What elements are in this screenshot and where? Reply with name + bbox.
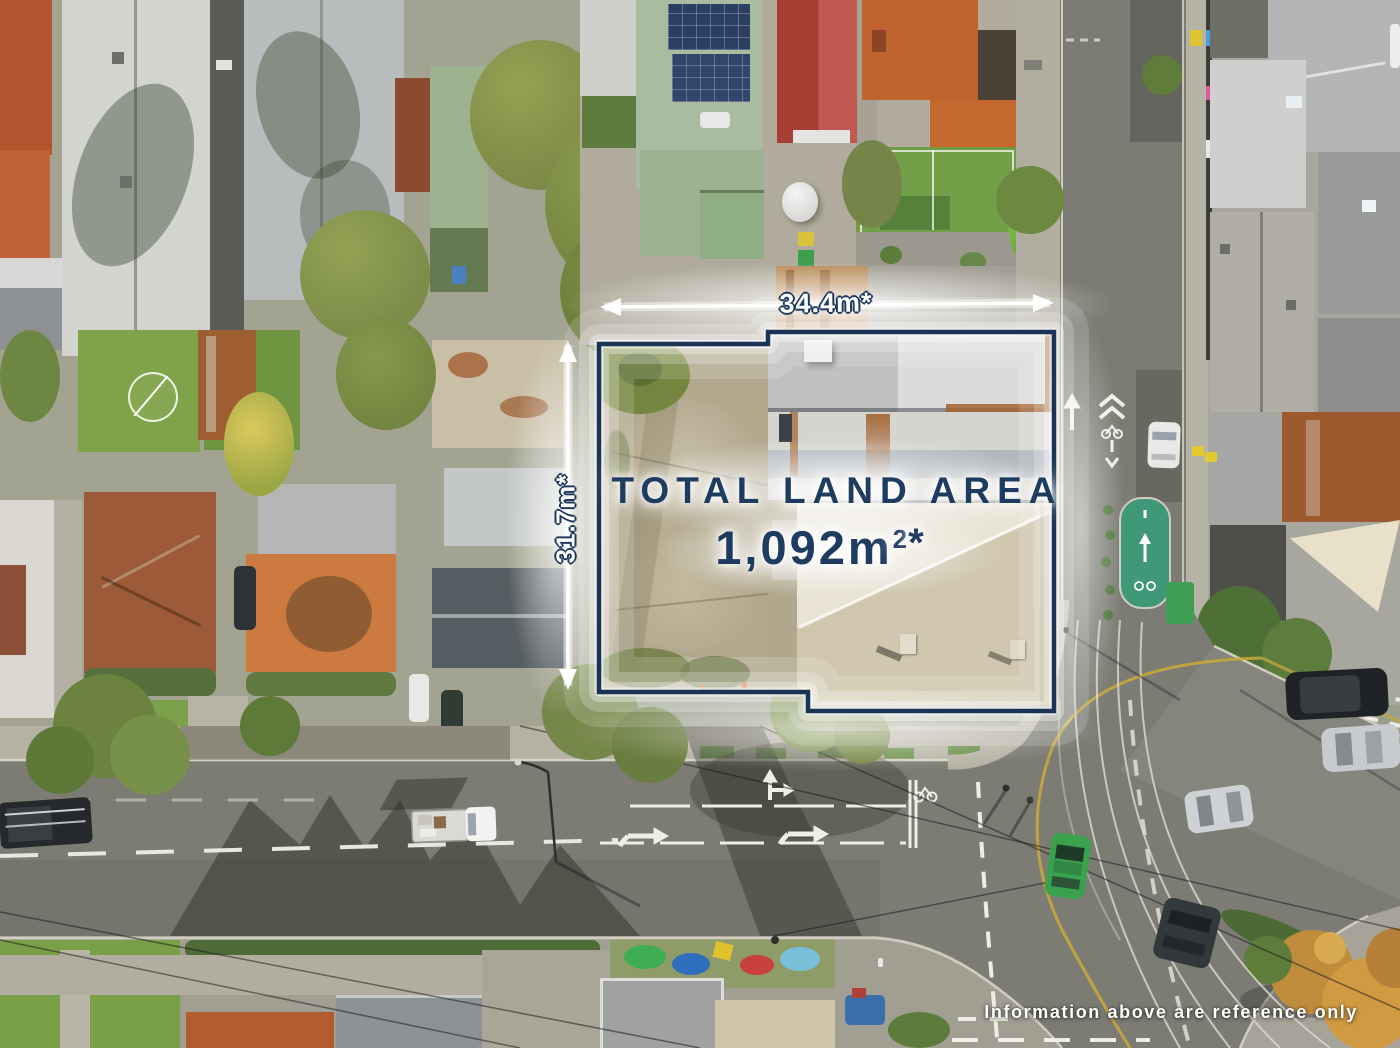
area-asterisk: *	[908, 521, 927, 565]
width-dimension-label: 34.4m*	[726, 286, 927, 320]
aerial-photo: 34.4m* 31.7m* TOTAL LAND AREA 1,092m2* I…	[0, 0, 1400, 1048]
land-area-title: TOTAL LAND AREA	[607, 470, 1067, 512]
area-superscript: 2	[893, 524, 908, 554]
depth-dimension-label: 31.7m*	[551, 439, 582, 599]
land-area-value: 1,092m2*	[621, 520, 1021, 575]
disclaimer-text: Information above are reference only	[984, 1002, 1358, 1023]
area-number: 1,092m	[715, 521, 892, 574]
